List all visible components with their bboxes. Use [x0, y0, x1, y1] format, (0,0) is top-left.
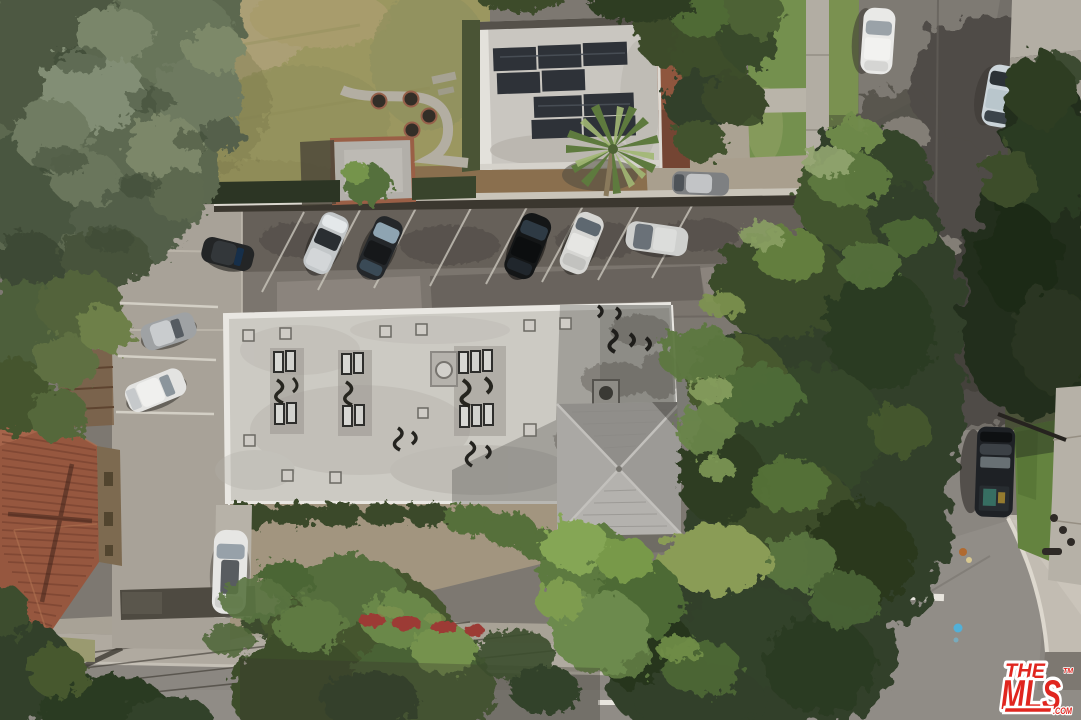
svg-text:TM: TM	[1063, 668, 1073, 675]
svg-text:.COM: .COM	[1053, 706, 1072, 716]
